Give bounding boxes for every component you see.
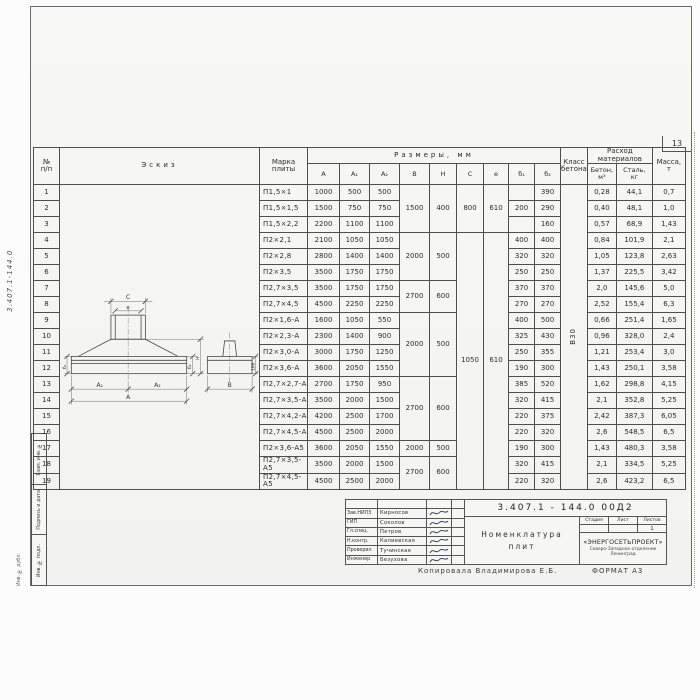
dim-a1: 1400 [340, 249, 370, 265]
mass: 5,0 [652, 281, 685, 297]
dim-e: 610 [484, 185, 509, 233]
dim-a2: 1700 [370, 409, 400, 425]
document-number: 3.407.1 - 144.0 00Д2 [465, 500, 666, 517]
dim-h: 500 [430, 313, 457, 377]
steel-weight: 387,3 [616, 409, 652, 425]
dim-b2: 320 [535, 425, 561, 441]
dim-a1: 1750 [340, 377, 370, 393]
signer-role: Н.контр. [346, 537, 378, 545]
steel-weight: 253,4 [616, 345, 652, 361]
mass: 3,42 [652, 265, 685, 281]
dim-b1: 270 [509, 297, 535, 313]
plate-mark: П2,7×4,5-А5 [260, 473, 308, 489]
row-number: 1 [34, 185, 60, 201]
dim-h: 600 [430, 281, 457, 313]
dim-a1: 2000 [340, 457, 370, 473]
dim-b: 2000 [400, 313, 430, 377]
mass: 3,58 [652, 441, 685, 457]
col-header-concrete-class: Класс бетона [561, 148, 588, 185]
dim-b: 2700 [400, 377, 430, 441]
dim-label-a2: А₂ [154, 382, 161, 389]
signer-role: Проверил [346, 546, 378, 554]
stamp-label: Инв. № подл. [37, 544, 42, 577]
dim-col-header: А [308, 164, 340, 185]
signer-role: Зав.НИЛЗ [346, 509, 378, 517]
mass: 2,4 [652, 329, 685, 345]
dim-b1 [509, 185, 535, 201]
signer-row: Проверил Тучинская [346, 546, 464, 555]
row-number: 3 [34, 217, 60, 233]
concrete-volume: 0,66 [587, 313, 616, 329]
dim-col-header: е [484, 164, 509, 185]
dim-col-header: Н [430, 164, 457, 185]
signer-role: ГИП [346, 519, 378, 527]
dim-c: 800 [457, 185, 484, 233]
dim-e: 610 [484, 233, 509, 490]
steel-weight: 155,4 [616, 297, 652, 313]
dim-b1: 370 [509, 281, 535, 297]
steel-weight: 48,1 [616, 201, 652, 217]
plate-mark: П2×3,0-А [260, 345, 308, 361]
dim-a: 2100 [308, 233, 340, 249]
dim-h: 600 [430, 377, 457, 441]
dim-b: 2000 [400, 441, 430, 457]
row-number: 9 [34, 313, 60, 329]
plate-mark: П2×1,6-А [260, 313, 308, 329]
signature [427, 509, 452, 517]
dim-b2: 390 [535, 185, 561, 201]
concrete-volume: 0,40 [587, 201, 616, 217]
plate-mark: П2×2,1 [260, 233, 308, 249]
stage-value [580, 525, 608, 532]
steel-weight: 225,5 [616, 265, 652, 281]
dim-a: 4500 [308, 297, 340, 313]
drawing-title: Номенклатура плит [465, 517, 580, 564]
dim-b1: 385 [509, 377, 535, 393]
dim-a: 3500 [308, 393, 340, 409]
plate-mark: П1,5×1 [260, 185, 308, 201]
dim-a: 2800 [308, 249, 340, 265]
row-number: 5 [34, 249, 60, 265]
dim-b2: 520 [535, 377, 561, 393]
dim-a2: 1550 [370, 361, 400, 377]
dim-b1: 250 [509, 265, 535, 281]
stage-label: Стадия [580, 517, 608, 525]
signer-name: Петров [378, 528, 427, 536]
dim-b2: 290 [535, 201, 561, 217]
concrete-volume: 1,43 [587, 441, 616, 457]
dim-a2: 1750 [370, 281, 400, 297]
signer-role: Гл.спец. [346, 528, 378, 536]
dim-b2: 270 [535, 297, 561, 313]
steel-weight: 423,2 [616, 473, 652, 489]
concrete-volume: 2,6 [587, 425, 616, 441]
steel-weight: 123,8 [616, 249, 652, 265]
dim-b1: 250 [509, 345, 535, 361]
row-number: 7 [34, 281, 60, 297]
sheets-label: Листов [638, 517, 666, 525]
dim-b2: 415 [535, 393, 561, 409]
concrete-volume: 0,28 [587, 185, 616, 201]
dim-a1: 2000 [340, 393, 370, 409]
dim-a1: 1400 [340, 329, 370, 345]
row-number: 8 [34, 297, 60, 313]
col-header-concrete: Бетон, м³ [587, 164, 616, 185]
concrete-class: В30 [561, 185, 588, 490]
dim-a1: 1750 [340, 281, 370, 297]
mass: 1,65 [652, 313, 685, 329]
col-header-sketch: Эскиз [60, 148, 260, 185]
dim-b2: 160 [535, 217, 561, 233]
mass: 3,0 [652, 345, 685, 361]
dim-a: 4500 [308, 425, 340, 441]
concrete-volume: 2,0 [587, 281, 616, 297]
concrete-volume: 1,62 [587, 377, 616, 393]
plate-mark: П2,7×2,7-А [260, 377, 308, 393]
dim-a2: 1750 [370, 265, 400, 281]
plate-mark: П2×3,6-А [260, 361, 308, 377]
signature-date [452, 546, 464, 554]
signature [427, 556, 452, 564]
sheet-label: Лист [609, 517, 637, 525]
row-number: 17 [34, 441, 60, 457]
col-header-mass: Масса, т [652, 148, 685, 185]
row-number: 18 [34, 457, 60, 473]
signer-row: Гл.спец. Петров [346, 528, 464, 537]
dim-a2: 1400 [370, 249, 400, 265]
dim-label-a: А [126, 394, 131, 401]
mass: 0,7 [652, 185, 685, 201]
dim-b1: 320 [509, 393, 535, 409]
dim-label-100: 100 [250, 362, 256, 370]
dim-a2: 1500 [370, 457, 400, 473]
dim-b2: 300 [535, 361, 561, 377]
dim-a: 2300 [308, 329, 340, 345]
row-number: 11 [34, 345, 60, 361]
dim-a1: 1050 [340, 233, 370, 249]
dim-b1: 220 [509, 425, 535, 441]
dim-b: 2000 [400, 233, 430, 281]
signer-header-row [346, 500, 464, 509]
mass: 5,25 [652, 393, 685, 409]
dim-a2: 550 [370, 313, 400, 329]
steel-weight: 251,4 [616, 313, 652, 329]
dim-label-c: С [126, 294, 130, 301]
dim-a2: 500 [370, 185, 400, 201]
dim-a: 3500 [308, 457, 340, 473]
steel-weight: 352,8 [616, 393, 652, 409]
row-number: 13 [34, 377, 60, 393]
dim-b2: 250 [535, 265, 561, 281]
col-header-consumption: Расход материалов [587, 148, 652, 164]
plate-mark: П2,7×4,5 [260, 297, 308, 313]
dim-col-header: б₁ [509, 164, 535, 185]
mass: 2,1 [652, 233, 685, 249]
mass: 1,43 [652, 217, 685, 233]
mass: 2,63 [652, 249, 685, 265]
row-number: 4 [34, 233, 60, 249]
row-number: 12 [34, 361, 60, 377]
concrete-volume: 2,52 [587, 297, 616, 313]
plate-mark: П2,7×4,5-А [260, 425, 308, 441]
plate-mark: П2,7×3,5 [260, 281, 308, 297]
plate-mark: П1,5×2,2 [260, 217, 308, 233]
dim-b2: 500 [535, 313, 561, 329]
dim-a1: 2050 [340, 361, 370, 377]
signer-row: ГИП Соколов [346, 519, 464, 528]
stamp-cell: Подпись и дата [32, 485, 46, 536]
plate-table-body: 1 [34, 185, 686, 490]
empty-cell [452, 500, 464, 508]
concrete-volume: 2,1 [587, 393, 616, 409]
scanned-drawing-sheet: 13 3.407.1-144.0 Взам. инв. № Подпись и … [0, 0, 700, 700]
dim-b1: 400 [509, 233, 535, 249]
steel-weight: 145,6 [616, 281, 652, 297]
dim-b1: 325 [509, 329, 535, 345]
col-header-dims: Размеры, мм [308, 148, 561, 164]
dim-b1: 200 [509, 201, 535, 217]
dim-label-b: В [227, 382, 231, 389]
concrete-volume: 1,37 [587, 265, 616, 281]
dim-h: 500 [430, 233, 457, 281]
dim-label-b1: б₁ [62, 364, 68, 369]
dim-col-header: А₁ [340, 164, 370, 185]
plate-mark: П2,7×3,5-А [260, 393, 308, 409]
dim-b1: 190 [509, 441, 535, 457]
format-note: ФОРМАТ А3 [592, 567, 643, 575]
row-number: 14 [34, 393, 60, 409]
row-number: 10 [34, 329, 60, 345]
steel-weight: 328,0 [616, 329, 652, 345]
organization-block: «ЭНЕРГОСЕТЬПРОЕКТ» Северо-Западное отдел… [580, 533, 666, 564]
dim-a: 2200 [308, 217, 340, 233]
organization-city: Ленинград [610, 552, 635, 558]
signature-date [452, 528, 464, 536]
dim-b2: 415 [535, 457, 561, 473]
row-number: 16 [34, 425, 60, 441]
dim-a: 3600 [308, 441, 340, 457]
dim-b2: 320 [535, 249, 561, 265]
dim-label-e: е [126, 305, 129, 311]
row-number: 2 [34, 201, 60, 217]
dim-a: 3000 [308, 345, 340, 361]
dim-a: 3500 [308, 281, 340, 297]
dim-a: 4500 [308, 473, 340, 489]
concrete-volume: 0,57 [587, 217, 616, 233]
page-edge-perforation [694, 132, 695, 588]
dim-h: 400 [430, 185, 457, 233]
header-row-top: № п/п Эскиз Марка плиты Размеры, мм Клас… [34, 148, 686, 164]
signature [427, 519, 452, 527]
steel-weight: 250,1 [616, 361, 652, 377]
dim-a: 4200 [308, 409, 340, 425]
sheets-col: Листов 1 [638, 517, 666, 532]
dim-h: 600 [430, 457, 457, 490]
plate-mark: П2×2,8 [260, 249, 308, 265]
dim-b1: 190 [509, 361, 535, 377]
dim-b1: 220 [509, 409, 535, 425]
dim-b1: 400 [509, 313, 535, 329]
concrete-volume: 1,05 [587, 249, 616, 265]
dim-b: 1500 [400, 185, 430, 233]
dim-c: 1050 [457, 233, 484, 490]
col-header-mark: Марка плиты [260, 148, 308, 185]
signer-role: Инженер [346, 556, 378, 564]
dim-b1: 320 [509, 249, 535, 265]
dim-a1: 2500 [340, 409, 370, 425]
dim-label-b2: б₂ [186, 364, 192, 369]
plate-mark: П2×3,6-А5 [260, 441, 308, 457]
steel-weight: 101,9 [616, 233, 652, 249]
empty-cell [346, 500, 378, 508]
dim-a: 1600 [308, 313, 340, 329]
steel-weight: 68,9 [616, 217, 652, 233]
outer-stamp-label: Инв. № дубл. [17, 536, 22, 586]
sheet-value [609, 525, 637, 532]
dim-b: 2700 [400, 281, 430, 313]
concrete-volume: 1,43 [587, 361, 616, 377]
steel-weight: 480,3 [616, 441, 652, 457]
dim-a2: 900 [370, 329, 400, 345]
dim-a1: 1100 [340, 217, 370, 233]
plate-section-sketch: С е А₁ А₂ А В б₂ Н б₁ 100 [61, 195, 259, 480]
dim-a: 2700 [308, 377, 340, 393]
dim-b2: 355 [535, 345, 561, 361]
dim-a: 1000 [308, 185, 340, 201]
dim-a2: 2000 [370, 473, 400, 489]
concrete-volume: 0,96 [587, 329, 616, 345]
dim-b2: 370 [535, 281, 561, 297]
steel-weight: 298,8 [616, 377, 652, 393]
signature [427, 546, 452, 554]
signature [427, 537, 452, 545]
stamp-cell: Инв. № подл. [32, 535, 46, 585]
dim-a1: 750 [340, 201, 370, 217]
signer-name: Кирносов [378, 509, 427, 517]
signer-name: Тучинская [378, 546, 427, 554]
dim-a2: 750 [370, 201, 400, 217]
title-block-signatures: Зав.НИЛЗ Кирносов ГИП Соколов Гл.спец. П… [346, 500, 465, 564]
stamp-label: Подпись и дата [37, 490, 42, 530]
dim-col-header: В [400, 164, 430, 185]
steel-weight: 44,1 [616, 185, 652, 201]
signer-name: Соколов [378, 519, 427, 527]
concrete-class-label: В30 [570, 328, 578, 345]
mass: 4,15 [652, 377, 685, 393]
row-number: 19 [34, 473, 60, 489]
dim-a2: 1500 [370, 393, 400, 409]
table-row: 1 [34, 185, 686, 201]
concrete-volume: 2,1 [587, 457, 616, 473]
dim-a2: 1250 [370, 345, 400, 361]
dim-b2: 320 [535, 473, 561, 489]
signer-row: Н.контр. Калиевская [346, 537, 464, 546]
dim-a1: 1050 [340, 313, 370, 329]
stage-strip: Стадия Лист Листов 1 [580, 517, 666, 533]
mass: 3,58 [652, 361, 685, 377]
signature-date [452, 556, 464, 564]
concrete-volume: 2,42 [587, 409, 616, 425]
dim-b2: 400 [535, 233, 561, 249]
col-header-num: № п/п [34, 148, 60, 185]
mass: 6,05 [652, 409, 685, 425]
mass: 6,3 [652, 297, 685, 313]
dim-a2: 1050 [370, 233, 400, 249]
dim-b1 [509, 217, 535, 233]
plate-mark: П1,5×1,5 [260, 201, 308, 217]
title-block-right: 3.407.1 - 144.0 00Д2 Номенклатура плит С… [465, 500, 666, 564]
dim-col-header: б₂ [535, 164, 561, 185]
sketch-cell: С е А₁ А₂ А В б₂ Н б₁ 100 [60, 185, 260, 490]
dim-a2: 950 [370, 377, 400, 393]
plate-mark: П2×3,5 [260, 265, 308, 281]
steel-weight: 334,5 [616, 457, 652, 473]
dim-b1: 220 [509, 473, 535, 489]
sheet-col: Лист [609, 517, 638, 532]
signature-date [452, 519, 464, 527]
dim-b2: 300 [535, 441, 561, 457]
concrete-volume: 1,21 [587, 345, 616, 361]
signer-name: Безухова [378, 556, 427, 564]
dim-b1: 320 [509, 457, 535, 473]
dim-a1: 2050 [340, 441, 370, 457]
dim-a: 1500 [308, 201, 340, 217]
plate-mark: П2×2,3-А [260, 329, 308, 345]
signature-date [452, 509, 464, 517]
dim-b: 2700 [400, 457, 430, 490]
mass: 6,5 [652, 425, 685, 441]
sheets-value: 1 [638, 525, 666, 532]
plate-mark: П2,7×4,2-А [260, 409, 308, 425]
dim-a: 3500 [308, 265, 340, 281]
dim-a1: 2500 [340, 425, 370, 441]
steel-weight: 548,5 [616, 425, 652, 441]
col-header-steel: Сталь, кг [616, 164, 652, 185]
organization-name: «ЭНЕРГОСЕТЬПРОЕКТ» [583, 539, 662, 547]
dim-a1: 1750 [340, 265, 370, 281]
empty-cell [427, 500, 452, 508]
dim-a2: 2250 [370, 297, 400, 313]
empty-cell [378, 500, 427, 508]
signer-row: Зав.НИЛЗ Кирносов [346, 509, 464, 518]
concrete-volume: 0,84 [587, 233, 616, 249]
stage-col: Стадия [580, 517, 609, 532]
dim-a1: 2250 [340, 297, 370, 313]
plate-mark: П2,7×3,5-А5 [260, 457, 308, 473]
row-number: 15 [34, 409, 60, 425]
dim-a1: 2500 [340, 473, 370, 489]
copied-by-note: Копировала Владимирова Е.Б. [418, 567, 557, 575]
signature [427, 528, 452, 536]
mass: 6,5 [652, 473, 685, 489]
dim-label-a1: А₁ [96, 382, 103, 389]
dim-label-h: Н [195, 356, 201, 360]
dim-b2: 430 [535, 329, 561, 345]
concrete-volume: 2,6 [587, 473, 616, 489]
dim-a1: 500 [340, 185, 370, 201]
signer-name: Калиевская [378, 537, 427, 545]
nomenclature-table: № п/п Эскиз Марка плиты Размеры, мм Клас… [33, 147, 686, 490]
margin-doc-code: 3.407.1-144.0 [6, 228, 14, 312]
dim-a2: 1100 [370, 217, 400, 233]
mass: 5,25 [652, 457, 685, 473]
signer-row: Инженер Безухова [346, 556, 464, 564]
mass: 1,0 [652, 201, 685, 217]
dim-a2: 1550 [370, 441, 400, 457]
dim-a1: 1750 [340, 345, 370, 361]
dim-col-header: А₂ [370, 164, 400, 185]
signature-date [452, 537, 464, 545]
